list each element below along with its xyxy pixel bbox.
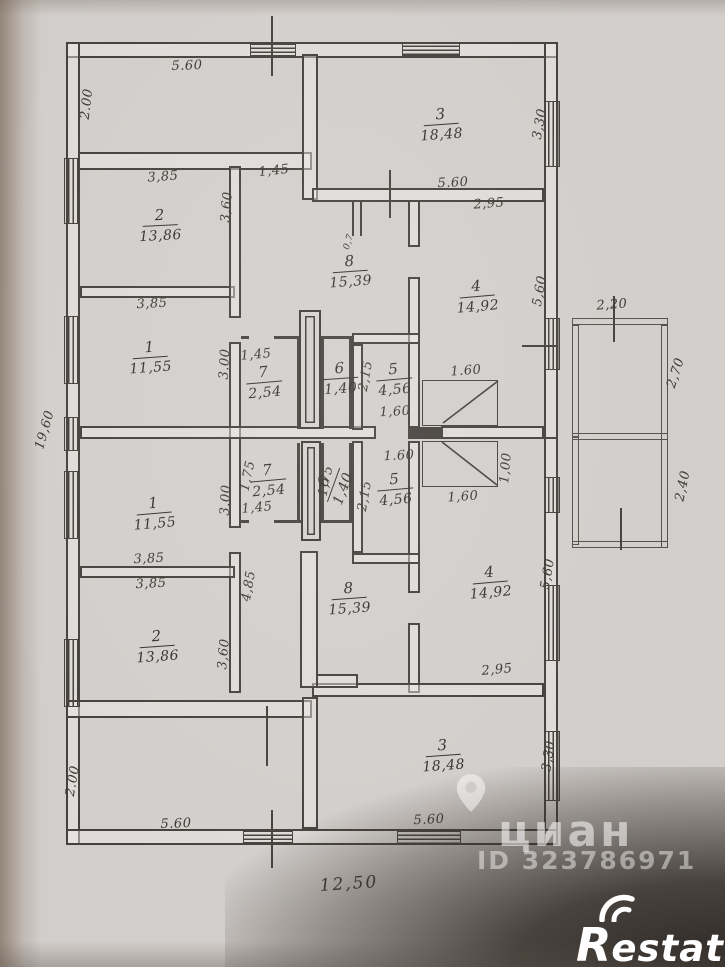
room-label: 318,48 <box>418 105 463 144</box>
wall-segment <box>297 443 300 523</box>
wall-segment <box>80 426 376 439</box>
room-label: 54,56 <box>375 360 414 399</box>
wall-segment <box>241 520 249 523</box>
room-label: 72,54 <box>245 363 284 402</box>
dimension-label: 3,60 <box>218 191 236 223</box>
window-symbol <box>64 158 80 224</box>
room-number: 5 <box>375 361 412 382</box>
window-symbol <box>64 639 80 707</box>
room-label: 213,86 <box>134 627 179 666</box>
room-area: 2,54 <box>250 479 287 499</box>
wall-segment <box>266 706 268 766</box>
annex-wall <box>572 433 668 440</box>
wall-segment <box>312 188 544 202</box>
room-area: 2,54 <box>246 381 283 401</box>
floorplan-scan: 213,86111,55318,48414,92815,3972,5461,40… <box>0 0 725 967</box>
dimension-label: 2,20 <box>596 296 628 313</box>
dimension-label: 2,95 <box>473 195 505 212</box>
window-symbol <box>544 477 560 513</box>
dimension-label: 1,00 <box>497 452 515 484</box>
annex-wall <box>572 437 579 545</box>
wall-segment <box>302 54 318 200</box>
room-number: 5 <box>376 471 413 492</box>
wall-segment <box>241 336 249 339</box>
room-area: 4,56 <box>377 488 414 508</box>
room-number: 7 <box>245 364 282 385</box>
room-label: 815,39 <box>327 252 372 291</box>
room-number: 8 <box>330 580 367 600</box>
dimension-label: 5.60 <box>437 175 469 192</box>
dimension-label: 3,85 <box>135 576 167 593</box>
dimension-label: 3,85 <box>133 551 165 568</box>
room-area: 13,86 <box>136 646 180 666</box>
wall-segment <box>229 166 241 318</box>
wall-segment <box>66 829 558 845</box>
room-area: 11,55 <box>129 357 173 377</box>
dimension-label: 0,7 <box>342 233 356 251</box>
room-area: 13,86 <box>139 225 182 244</box>
room-label: 318,48 <box>420 736 465 775</box>
restate-waves-icon <box>598 892 644 922</box>
dimension-label: 1,45 <box>240 346 272 364</box>
annex-wall <box>572 318 668 325</box>
room-label: 414,92 <box>467 562 513 602</box>
wall-segment <box>620 508 622 550</box>
window-symbol <box>64 471 80 539</box>
room-number: 1 <box>135 495 172 516</box>
room-label: 815,39 <box>326 579 371 618</box>
dimension-label: 1,45 <box>258 162 290 180</box>
dimension-label: 12,50 <box>319 872 379 896</box>
page-edge-shadow <box>0 0 42 967</box>
dimension-label: 4,85 <box>239 569 259 602</box>
room-area: 18,48 <box>422 755 466 775</box>
wall-segment <box>522 437 558 439</box>
room-label: 213,86 <box>138 206 182 244</box>
room-label: 111,55 <box>127 338 172 377</box>
dimension-label: 2.00 <box>78 88 97 121</box>
listing-id-watermark: ID 323786971 <box>477 846 696 875</box>
dimension-label: 1.60 <box>383 448 415 465</box>
dimension-label: 19,60 <box>32 409 57 451</box>
dimension-label: 1,60 <box>379 404 411 421</box>
restate-logo: Restate <box>576 894 725 967</box>
dimension-label: 3,85 <box>136 296 168 313</box>
wall-segment <box>352 200 354 236</box>
dimension-label: 3,85 <box>147 168 179 185</box>
room-label: 414,92 <box>454 276 500 316</box>
window-symbol <box>243 831 293 843</box>
top-edge-shadow <box>0 0 725 16</box>
wall-segment <box>408 441 420 593</box>
room-number: 3 <box>424 737 461 757</box>
stair-hatch <box>422 441 498 487</box>
restate-logo-text: Restate <box>576 918 725 967</box>
wall-segment <box>352 553 420 564</box>
room-number: 1 <box>131 339 168 359</box>
room-area: 15,39 <box>329 271 373 291</box>
dimension-label: 3.00 <box>217 348 234 380</box>
room-number: 6 <box>321 360 358 380</box>
room-number: 4 <box>471 564 508 585</box>
room-area: 18,48 <box>420 124 464 144</box>
window-symbol <box>402 42 460 56</box>
window-symbol <box>397 831 461 845</box>
window-symbol <box>64 316 80 384</box>
room-area: 15,39 <box>328 598 372 618</box>
window-symbol <box>64 417 80 451</box>
wall-segment <box>408 427 442 439</box>
dimension-label: 5.60 <box>160 816 191 832</box>
dimension-label: 3,60 <box>215 638 233 670</box>
room-label: 54,56 <box>376 470 415 509</box>
dimension-label: 3.00 <box>218 484 235 516</box>
wall-segment <box>300 551 318 688</box>
room-number: 2 <box>141 207 177 227</box>
room-label: 111,55 <box>131 493 177 533</box>
window-symbol <box>544 318 560 370</box>
dimension-label: 1.60 <box>450 362 482 379</box>
annex-wall <box>572 325 579 437</box>
wall-segment <box>316 674 358 688</box>
room-number: 8 <box>331 253 368 273</box>
chimney-block <box>299 310 321 429</box>
wall-segment <box>352 333 420 344</box>
window-symbol <box>250 44 296 56</box>
room-number: 3 <box>422 106 459 126</box>
wall-segment <box>360 200 362 236</box>
window-symbol <box>544 585 560 661</box>
room-label: 61,40 <box>321 359 359 397</box>
wall-segment <box>66 700 312 718</box>
dimension-label: 2,40 <box>672 469 693 502</box>
wall-segment <box>408 200 420 247</box>
room-area: 4,56 <box>376 378 413 398</box>
dimension-label: 2,95 <box>481 661 513 679</box>
room-number: 2 <box>138 628 175 648</box>
map-pin-icon <box>455 772 487 818</box>
dimension-label: 1,45 <box>241 499 273 517</box>
wall-segment <box>389 170 391 218</box>
dimension-label: 5.60 <box>413 812 445 829</box>
room-area: 1,40 <box>322 378 359 397</box>
dimension-label: 5.60 <box>171 58 202 74</box>
wall-segment <box>302 697 318 829</box>
room-number: 4 <box>458 278 495 299</box>
dimension-label: 1,60 <box>447 488 479 505</box>
stair-hatch <box>422 380 498 426</box>
